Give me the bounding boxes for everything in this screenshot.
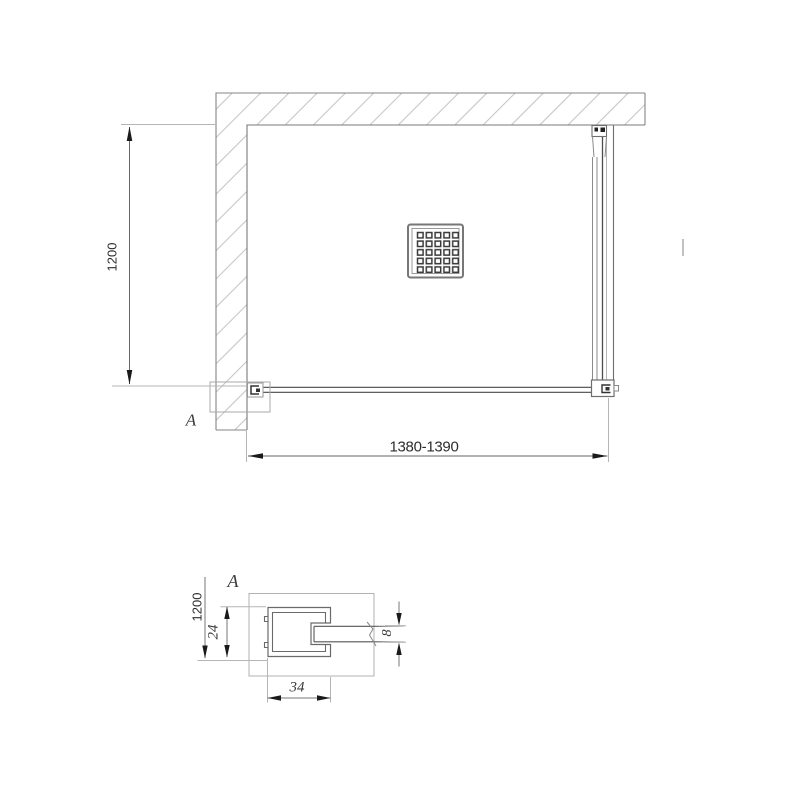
wall-profile-plan [248, 383, 264, 397]
glass-panel-plan [258, 387, 607, 392]
plan-view [112, 93, 683, 462]
profile-depth-dimension-label: 24 [207, 625, 222, 640]
profile-depth-dimension [221, 607, 267, 658]
profile-width-dimension-label: 34 [290, 681, 305, 696]
wall-bracket [592, 126, 607, 158]
floor-drain-icon [408, 225, 463, 278]
detail-view-label: A [228, 572, 239, 590]
technical-drawing-page: 1200 1380-1390 A A 1200 24 8 34 [0, 0, 800, 800]
detail-height-dimension-label: 1200 [191, 593, 204, 622]
detail-a-marker: A [186, 412, 196, 429]
glass-thickness-dimension-label: 8 [381, 630, 395, 637]
break-line [367, 622, 376, 646]
drawing-canvas [0, 0, 800, 800]
depth-dimension-label: 1200 [106, 243, 119, 272]
glass-clamp-foot [592, 380, 619, 397]
wall-profile-section [265, 608, 331, 657]
support-bar [592, 126, 619, 397]
width-dimension-label: 1380-1390 [389, 440, 458, 455]
